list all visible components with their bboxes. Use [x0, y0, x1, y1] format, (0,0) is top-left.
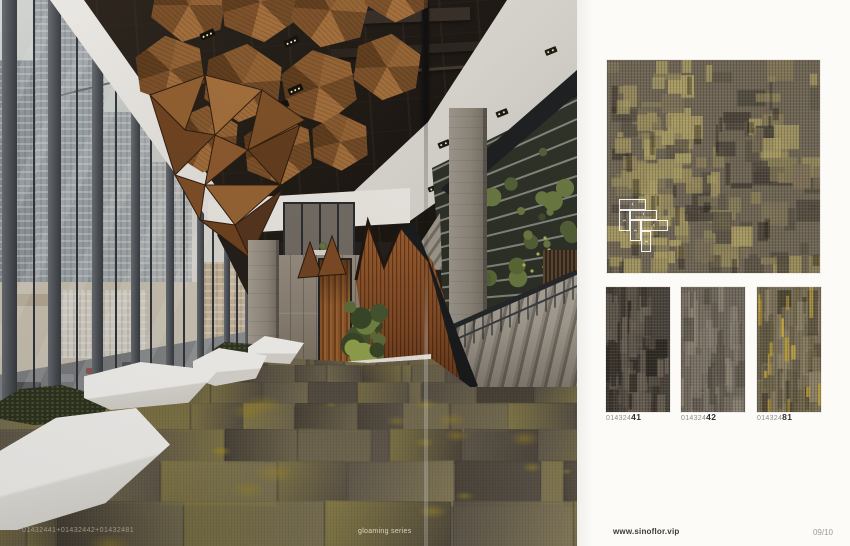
install-tile: ‹	[619, 199, 646, 210]
install-tile: ‹	[630, 210, 657, 221]
catalog-spread: 01432441+01432442+01432481 gloaming seri…	[0, 0, 850, 546]
carpet-pattern-1	[606, 287, 670, 412]
product-code-overlay: 01432441+01432442+01432481	[22, 527, 134, 534]
catalog-right-page: ‹ ‹ ‹ ‹ ‹ ‹ 01432441 01432442 01432481 w…	[577, 0, 850, 546]
product-swatch-small-1	[606, 287, 670, 412]
product-code-label-2: 01432442	[681, 412, 751, 422]
arrow-left-icon: ‹	[642, 211, 644, 218]
arrow-left-icon: ‹	[653, 222, 655, 229]
arrow-up-icon: ‹	[642, 240, 649, 242]
product-swatch-small-2	[681, 287, 745, 412]
install-tile: ‹	[641, 220, 668, 231]
arrow-up-icon: ‹	[621, 219, 628, 221]
product-swatch-small-3	[757, 287, 821, 412]
install-tile: ‹	[630, 220, 641, 241]
install-tile: ‹	[641, 231, 652, 252]
product-swatch-large: ‹ ‹ ‹ ‹ ‹ ‹	[607, 60, 820, 273]
product-code-label-3: 01432481	[757, 412, 827, 422]
carpet-pattern-2	[681, 287, 745, 412]
series-name-overlay: gloaming series	[358, 528, 412, 535]
carpet-pattern-3	[757, 287, 821, 412]
product-code-label-1: 01432441	[606, 412, 676, 422]
arrow-left-icon: ‹	[631, 201, 633, 208]
install-tile: ‹	[619, 210, 630, 231]
page-fold-line	[424, 0, 428, 546]
arrow-up-icon: ‹	[632, 229, 639, 231]
interior-rendering: 01432441+01432442+01432481 gloaming seri…	[0, 0, 577, 546]
page-number: 09/10	[813, 528, 833, 537]
website-link: www.sinoflor.vip	[613, 527, 679, 536]
carpet-pattern-large	[607, 60, 820, 273]
